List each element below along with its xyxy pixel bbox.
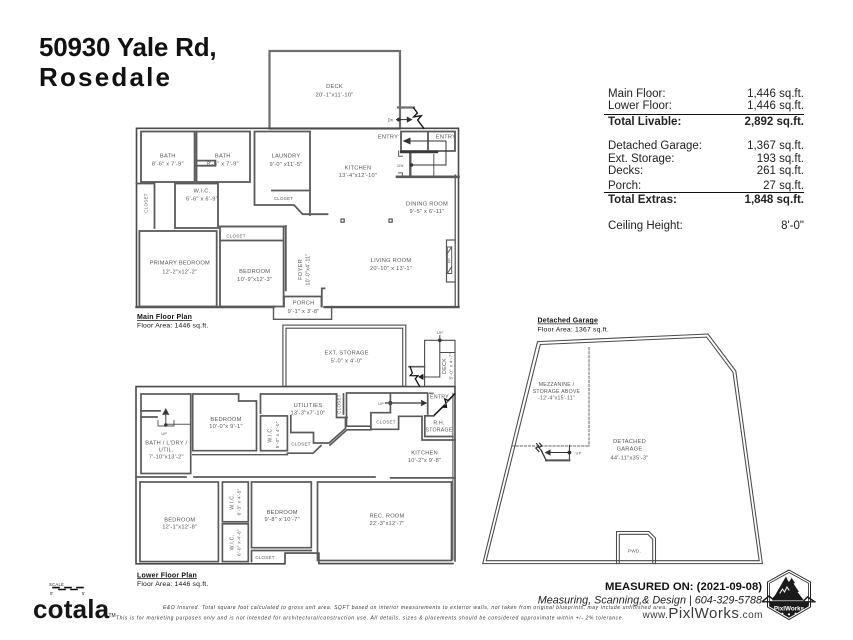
svg-text:BATH: BATH <box>215 154 231 160</box>
svg-text:9'-5" x 6'-11": 9'-5" x 6'-11" <box>410 209 445 215</box>
svg-text:BATH / L'DRY /: BATH / L'DRY / <box>145 441 187 447</box>
svg-text:Dn: Dn <box>388 117 394 122</box>
svg-text:SCALE: SCALE <box>49 582 64 587</box>
svg-text:KITCHEN: KITCHEN <box>411 451 438 457</box>
svg-text:9'-0" x11'-5": 9'-0" x11'-5" <box>269 162 302 168</box>
svg-text:KITCHEN: KITCHEN <box>345 166 372 172</box>
svg-text:9'-8" x 10'-7": 9'-8" x 10'-7" <box>265 517 300 523</box>
svg-text:Lower Floor Plan: Lower Floor Plan <box>137 572 197 579</box>
svg-text:CLOSET: CLOSET <box>144 193 149 212</box>
svg-text:5'-0" x 4'-0": 5'-0" x 4'-0" <box>331 359 363 365</box>
svg-text:UP: UP <box>576 451 582 456</box>
svg-text:STORAGE: STORAGE <box>425 428 452 434</box>
svg-text:DN: DN <box>397 163 403 168</box>
svg-text:10'-0"x4'-11": 10'-0"x4'-11" <box>306 254 312 286</box>
svg-text:7'-10"x13'-2": 7'-10"x13'-2" <box>149 455 184 461</box>
svg-text:PWD.: PWD. <box>628 549 641 554</box>
svg-text:PORCH: PORCH <box>293 301 315 307</box>
svg-text:BEDROOM: BEDROOM <box>239 269 270 275</box>
svg-text:6'-0" x 4'-6": 6'-0" x 4'-6" <box>236 529 241 556</box>
svg-text:UTIL.: UTIL. <box>159 448 174 454</box>
svg-text:Floor Area: 1446 sq.ft.: Floor Area: 1446 sq.ft. <box>137 322 208 329</box>
svg-text:CLOSET: CLOSET <box>337 394 342 413</box>
svg-text:UP: UP <box>161 431 167 436</box>
svg-text:This is for marketing purposes: This is for marketing purposes only and … <box>116 616 624 622</box>
svg-text:Floor Area: 1446 sq.ft.: Floor Area: 1446 sq.ft. <box>137 581 208 588</box>
svg-text:EXT. STORAGE: EXT. STORAGE <box>324 351 368 357</box>
svg-text:-12'-4"x15'-11": -12'-4"x15'-11" <box>538 396 575 402</box>
svg-text:UP: UP <box>437 330 443 335</box>
svg-text:STORAGE ABOVE: STORAGE ABOVE <box>533 389 581 395</box>
svg-text:8'-5" x 7'-9": 8'-5" x 7'-9" <box>207 162 239 168</box>
svg-text:W.I.C.: W.I.C. <box>194 189 211 195</box>
svg-text:BEDROOM: BEDROOM <box>210 417 241 423</box>
svg-text:12'-2"x12'-2": 12'-2"x12'-2" <box>162 270 197 276</box>
svg-text:44'-11"x35'-3": 44'-11"x35'-3" <box>610 456 648 462</box>
svg-text:5'-0" x 4'-7": 5'-0" x 4'-7" <box>449 352 454 379</box>
svg-text:FOYER: FOYER <box>298 259 304 280</box>
svg-text:DETACHED: DETACHED <box>613 439 646 445</box>
svg-text:GARAGE: GARAGE <box>617 447 643 453</box>
svg-text:BEDROOM: BEDROOM <box>164 517 195 523</box>
svg-text:ENTRY: ENTRY <box>436 135 456 141</box>
svg-text:BATH: BATH <box>160 154 176 160</box>
svg-text:UTILITIES: UTILITIES <box>294 403 323 409</box>
svg-text:9'-1" x 3'-8": 9'-1" x 3'-8" <box>288 309 320 315</box>
svg-text:20'-10" x 13'-1": 20'-10" x 13'-1" <box>370 266 412 272</box>
svg-text:cotala: cotala <box>33 594 110 624</box>
svg-text:LAUNDRY: LAUNDRY <box>272 154 301 160</box>
svg-text:13'-4"x12'-10": 13'-4"x12'-10" <box>339 173 377 179</box>
svg-text:REC. ROOM: REC. ROOM <box>369 514 404 520</box>
svg-text:DECK: DECK <box>326 84 343 90</box>
svg-text:10'-0"x 9'-1": 10'-0"x 9'-1" <box>209 424 243 430</box>
svg-text:R.H.: R.H. <box>433 421 444 427</box>
svg-text:W.I.C.: W.I.C. <box>267 427 273 443</box>
svg-text:CLOSET: CLOSET <box>274 196 293 201</box>
svg-text:CLOSET: CLOSET <box>291 441 310 446</box>
svg-text:W.I.C.: W.I.C. <box>229 535 235 551</box>
svg-text:CLOSET: CLOSET <box>255 555 274 560</box>
svg-text:10'-2"x 9'-8": 10'-2"x 9'-8" <box>408 458 442 464</box>
svg-text:TM: TM <box>109 613 116 619</box>
svg-text:22'-3"x12'-7": 22'-3"x12'-7" <box>369 521 404 527</box>
svg-text:ENTRY: ENTRY <box>430 394 449 400</box>
svg-text:LIVING ROOM: LIVING ROOM <box>371 258 412 264</box>
svg-text:MEZZANINE /: MEZZANINE / <box>539 382 575 388</box>
svg-text:DECK: DECK <box>442 358 448 374</box>
svg-text:CLOSET: CLOSET <box>226 234 245 239</box>
svg-text:10'-9"x12'-3": 10'-9"x12'-3" <box>237 277 272 283</box>
svg-text:Floor Area: 1367 sq.ft.: Floor Area: 1367 sq.ft. <box>538 327 609 334</box>
svg-text:DINING ROOM: DINING ROOM <box>406 202 448 208</box>
svg-text:8'-6" x 7'-9": 8'-6" x 7'-9" <box>152 162 184 168</box>
svg-text:CLOSET: CLOSET <box>376 419 395 424</box>
svg-text:BEDROOM: BEDROOM <box>267 510 298 516</box>
svg-text:20'-1"x11'-10": 20'-1"x11'-10" <box>315 93 353 99</box>
svg-text:FP: FP <box>448 258 452 264</box>
svg-text:6'-3" x 4'-5": 6'-3" x 4'-5" <box>236 488 241 515</box>
svg-text:5'-0" x 4'-0": 5'-0" x 4'-0" <box>275 421 280 448</box>
svg-text:MEASURED ON: (2021-09-08): MEASURED ON: (2021-09-08) <box>605 581 762 593</box>
svg-text:12'-1"x12'-8": 12'-1"x12'-8" <box>162 525 197 531</box>
svg-text:PixlWorks: PixlWorks <box>774 606 805 613</box>
svg-text:Main Floor Plan: Main Floor Plan <box>137 314 192 321</box>
svg-text:UP: UP <box>378 401 384 406</box>
svg-text:PRIMARY BEDROOM: PRIMARY BEDROOM <box>150 261 210 267</box>
svg-text:ENTRY: ENTRY <box>378 135 398 141</box>
svg-text:Detached Garage: Detached Garage <box>538 318 599 325</box>
svg-text:W.I.C.: W.I.C. <box>229 494 235 510</box>
svg-text:13'-3"x7'-10": 13'-3"x7'-10" <box>290 411 325 417</box>
svg-text:6'-6" x 6'-9": 6'-6" x 6'-9" <box>186 197 218 203</box>
